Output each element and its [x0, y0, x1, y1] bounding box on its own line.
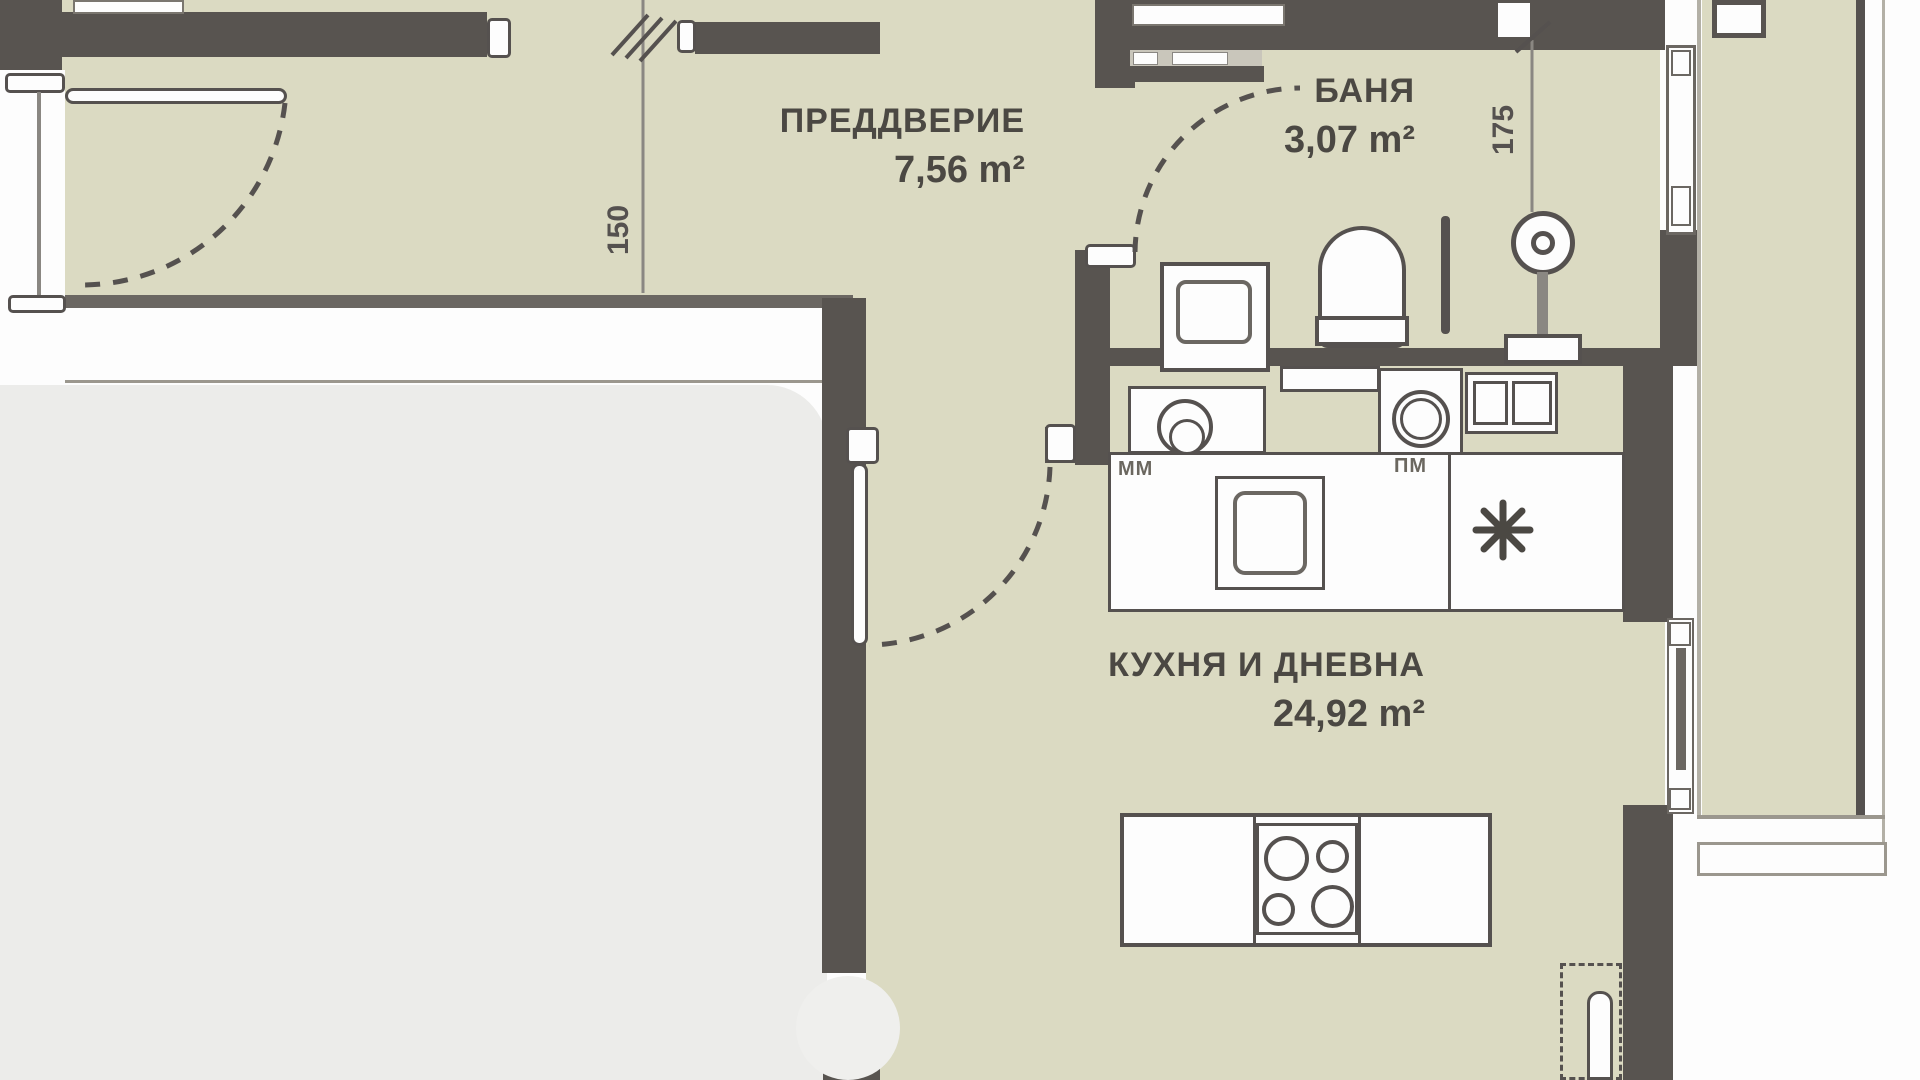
wall-right-kitchen	[1623, 352, 1673, 622]
counter-divider	[1448, 452, 1451, 612]
terrace-slab-band	[1697, 842, 1887, 876]
washing-machine-label: ПМ	[1394, 455, 1427, 478]
wall-right-upper	[1660, 230, 1700, 352]
room-name: ПРЕДДВЕРИЕ	[625, 100, 1025, 143]
dimension-text-175: 175	[1487, 95, 1517, 165]
washing-machine-door	[1176, 280, 1252, 344]
pedestal-sink-drain	[1531, 231, 1555, 255]
window-right-lower-jamb	[1669, 788, 1691, 810]
window-right-upper-mullion	[1671, 50, 1691, 76]
room-label-bathroom: БАНЯ 3,07 m²	[1115, 70, 1415, 164]
room-fill-terrace	[1702, 0, 1858, 818]
shaft-window-right	[1495, 0, 1533, 40]
towel-rail	[1441, 216, 1450, 334]
cooktop-burner	[1262, 893, 1295, 926]
cooktop-burner	[1264, 836, 1309, 881]
room-label-hall: ПРЕДДВЕРИЕ 7,56 m²	[625, 100, 1025, 194]
room-area: 3,07 m²	[1115, 117, 1415, 165]
dishwasher-label: ММ	[1118, 458, 1153, 481]
room-area: 24,92 m²	[1025, 691, 1425, 739]
wall-right-lower	[1623, 805, 1673, 1080]
dimension-text-150: 150	[602, 195, 632, 265]
kitchen-counter	[1108, 452, 1625, 612]
wall-top-left-horizontal	[62, 12, 487, 57]
terrace-column	[1712, 0, 1766, 38]
pedestal-sink-base	[1504, 334, 1582, 364]
door-jamb	[1085, 244, 1136, 268]
room-name: КУХНЯ И ДНЕВНА	[1025, 644, 1425, 687]
niche-door-leaf	[1587, 991, 1613, 1080]
kitchen-sink-bowl-inner	[1169, 419, 1205, 455]
window-band	[65, 295, 853, 383]
room-name: БАНЯ	[1115, 70, 1415, 113]
terrace-face-line	[1697, 0, 1701, 818]
door-jamb	[846, 427, 879, 464]
room-label-kitchen-living: КУХНЯ И ДНЕВНА 24,92 m²	[1025, 644, 1425, 738]
door-jamb	[5, 73, 65, 93]
window-top-left	[73, 0, 184, 14]
double-appliance-cell	[1512, 381, 1552, 425]
door-jamb	[1045, 424, 1076, 463]
island-divider	[1358, 813, 1361, 947]
bathroom-duct-cell-2	[1172, 52, 1228, 65]
bathroom-duct-cell-1	[1133, 52, 1158, 65]
second-sink-bowl-inner	[1400, 398, 1442, 440]
left-wall-face	[12, 70, 65, 298]
counter-shelf	[1280, 366, 1380, 392]
door-jamb	[677, 20, 696, 53]
fridge-snowflake-icon	[1472, 499, 1534, 561]
shaft-window-bathroom	[1132, 4, 1285, 26]
window-right-upper-mullion	[1671, 186, 1691, 226]
door-jamb	[8, 295, 66, 313]
double-appliance-cell	[1473, 381, 1508, 425]
door-jamb	[487, 18, 511, 58]
window-right-lower-glass	[1676, 648, 1686, 770]
terrace-outer-line	[1882, 0, 1885, 848]
cooktop-burner	[1311, 885, 1354, 928]
terrace-slab-line	[1697, 815, 1885, 819]
soft-white-area	[0, 385, 827, 1080]
cooktop-burner	[1316, 840, 1349, 873]
wall-top-left-corner	[0, 0, 62, 70]
door-leaf-entry	[65, 88, 287, 104]
window-right-lower-jamb	[1669, 622, 1691, 646]
oven-door	[1233, 491, 1307, 575]
terrace-railing	[1856, 0, 1865, 818]
door-leaf-living	[851, 463, 868, 646]
pedestal-sink-column	[1537, 272, 1548, 338]
toilet-tank	[1315, 316, 1409, 346]
floor-plan: ММ ПМ	[0, 0, 1920, 1080]
wall-top-middle	[695, 22, 880, 54]
column-round	[796, 976, 900, 1080]
room-area: 7,56 m²	[625, 147, 1025, 195]
